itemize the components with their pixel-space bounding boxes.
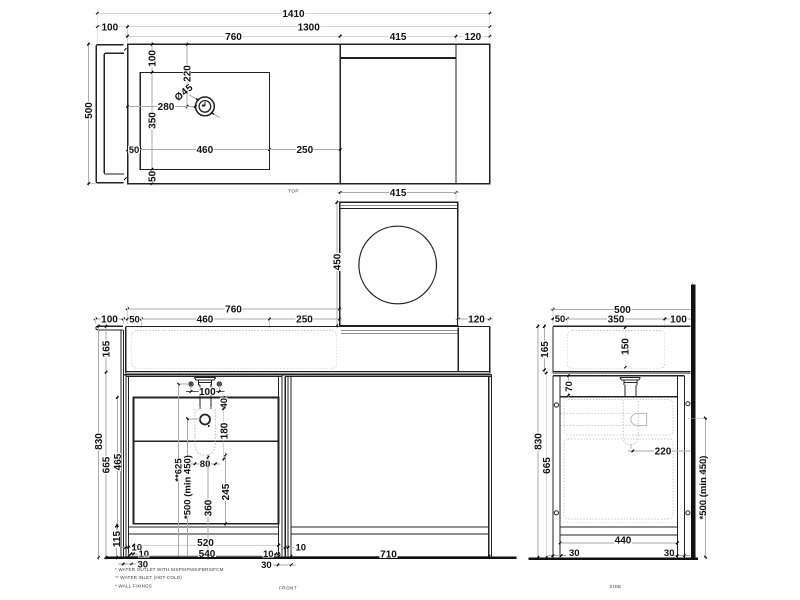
svg-text:520: 520 xyxy=(197,538,214,549)
svg-text:100: 100 xyxy=(199,387,216,398)
svg-text:115: 115 xyxy=(112,530,123,547)
svg-text:10: 10 xyxy=(296,543,307,554)
svg-text:450: 450 xyxy=(332,253,343,270)
svg-text:350: 350 xyxy=(148,112,159,129)
svg-text:50: 50 xyxy=(129,145,140,156)
svg-text:10: 10 xyxy=(263,549,274,560)
svg-text:1410: 1410 xyxy=(282,9,305,20)
svg-text:50: 50 xyxy=(555,314,566,325)
svg-text:50: 50 xyxy=(129,314,140,325)
svg-text:FRONT: FRONT xyxy=(279,585,297,590)
svg-text:* WALL FIXINGS: * WALL FIXINGS xyxy=(115,583,152,588)
svg-text:100: 100 xyxy=(148,50,159,67)
svg-text:465: 465 xyxy=(113,453,124,470)
svg-text:220: 220 xyxy=(655,447,672,458)
svg-text:830: 830 xyxy=(533,433,544,450)
svg-text:100: 100 xyxy=(670,314,687,325)
svg-text:245: 245 xyxy=(221,483,232,500)
svg-text:80: 80 xyxy=(200,459,211,470)
svg-text:*500 (min 450): *500 (min 450) xyxy=(698,456,709,520)
svg-text:165: 165 xyxy=(102,340,113,357)
svg-text:30: 30 xyxy=(261,560,272,571)
svg-text:1300: 1300 xyxy=(298,22,321,33)
svg-text:665: 665 xyxy=(102,456,113,473)
svg-text:760: 760 xyxy=(225,32,242,43)
svg-text:415: 415 xyxy=(390,188,407,199)
svg-text:760: 760 xyxy=(225,304,242,315)
svg-text:120: 120 xyxy=(468,315,485,326)
svg-text:50: 50 xyxy=(148,170,159,182)
svg-text:350: 350 xyxy=(608,314,625,325)
svg-text:250: 250 xyxy=(296,145,313,156)
svg-text:40: 40 xyxy=(219,398,230,409)
svg-text:280: 280 xyxy=(158,102,175,113)
svg-text:415: 415 xyxy=(390,32,407,43)
svg-text:460: 460 xyxy=(197,315,214,326)
svg-text:500: 500 xyxy=(84,102,95,119)
svg-text:165: 165 xyxy=(540,341,551,358)
svg-text:250: 250 xyxy=(296,315,313,326)
svg-text:540: 540 xyxy=(199,549,216,560)
svg-text:100: 100 xyxy=(101,22,118,33)
svg-text:TOP: TOP xyxy=(288,189,299,194)
svg-text:180: 180 xyxy=(219,422,230,439)
svg-text:*500 (min 450): *500 (min 450) xyxy=(182,455,193,519)
svg-text:SIDE: SIDE xyxy=(609,584,621,589)
svg-text:440: 440 xyxy=(615,536,632,547)
svg-text:150: 150 xyxy=(620,338,631,355)
svg-text:710: 710 xyxy=(380,550,397,561)
svg-text:30: 30 xyxy=(664,548,675,559)
svg-text:665: 665 xyxy=(542,457,553,474)
svg-text:100: 100 xyxy=(101,315,118,326)
svg-text:460: 460 xyxy=(196,145,213,156)
svg-text:* WATER OUTLET WITH SISPSIFNIS: * WATER OUTLET WITH SISPSIFNISIFBRSIFCM xyxy=(115,567,224,572)
svg-text:120: 120 xyxy=(465,32,482,43)
svg-text:360: 360 xyxy=(204,499,215,516)
svg-text:220: 220 xyxy=(183,65,194,82)
svg-text:830: 830 xyxy=(94,433,105,450)
svg-text:70: 70 xyxy=(564,381,575,392)
svg-text:** WATER INLET (HOT-COLD): ** WATER INLET (HOT-COLD) xyxy=(115,575,182,580)
svg-text:30: 30 xyxy=(569,548,580,559)
